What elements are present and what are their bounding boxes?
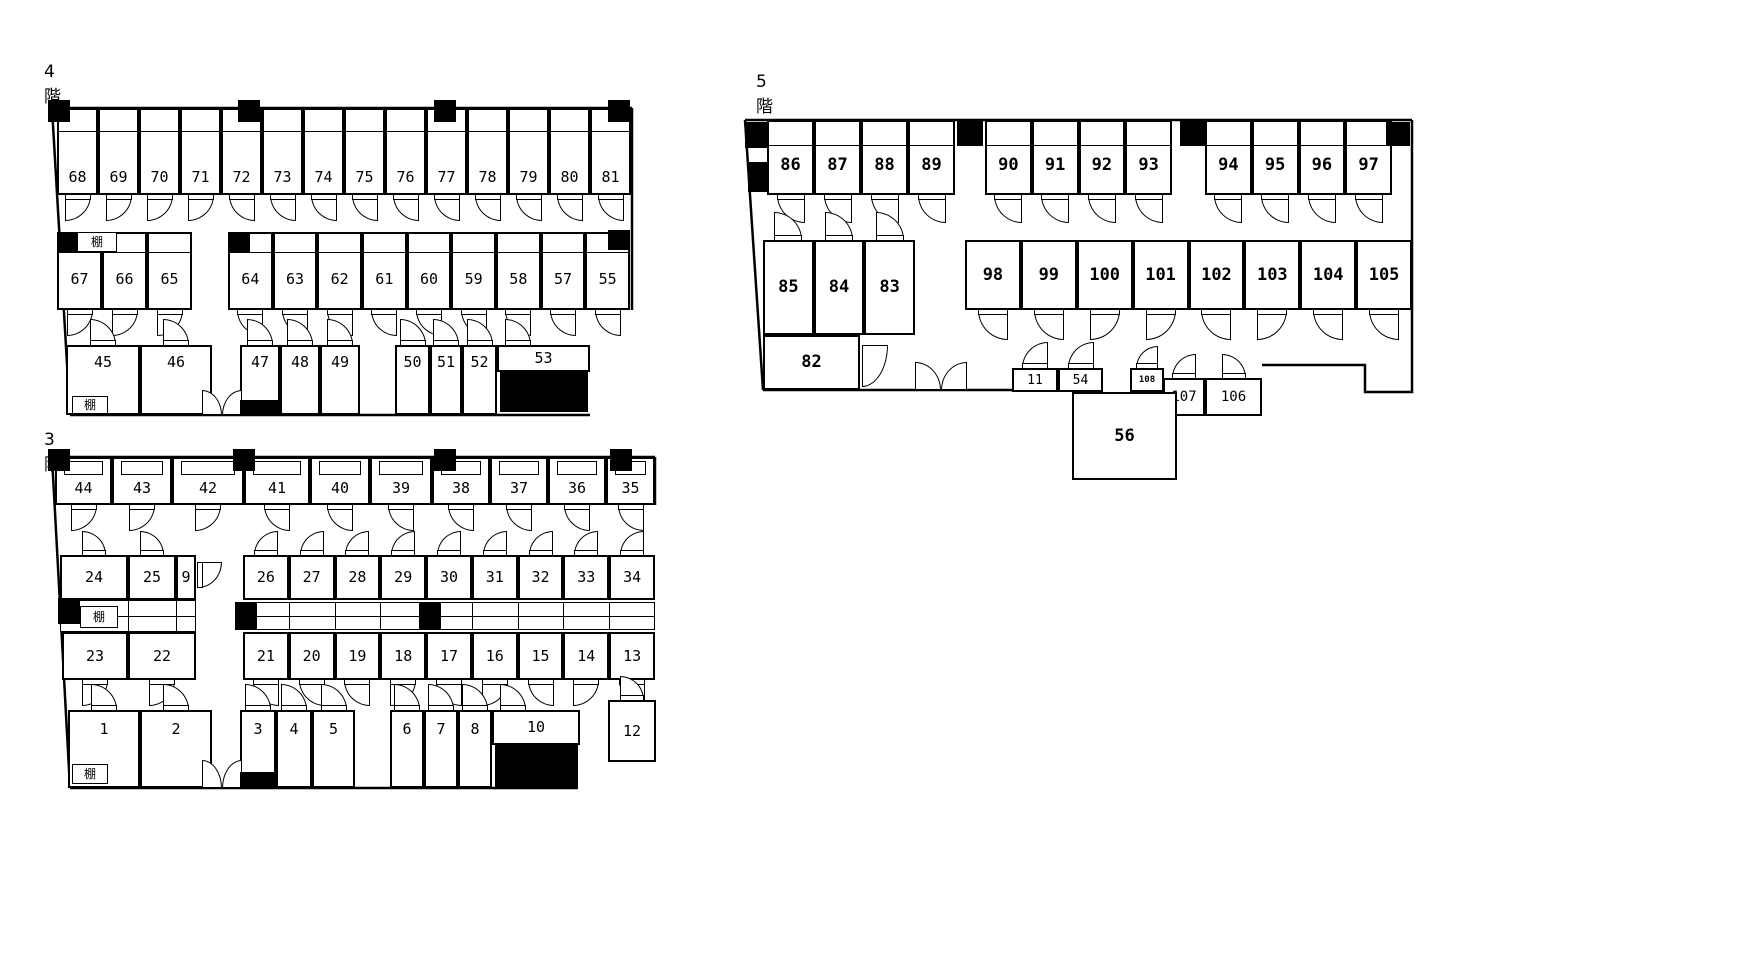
door-leaf — [1214, 194, 1242, 200]
room-label: 58 — [509, 272, 527, 287]
door-leaf — [557, 194, 583, 200]
room-label: 49 — [331, 355, 349, 370]
room-label: 66 — [115, 272, 133, 287]
room-label: 57 — [554, 272, 572, 287]
room-91: 91 — [1032, 120, 1079, 195]
door-leaf — [327, 309, 353, 315]
room-16: 16 — [472, 632, 518, 680]
floor-label-5f: 5階 — [756, 72, 774, 117]
closet-box — [379, 461, 423, 475]
room-76: 76 — [385, 108, 426, 195]
door-leaf — [82, 550, 106, 556]
closet-box — [181, 461, 235, 475]
pillar — [1180, 120, 1206, 146]
shelf-label: 棚 — [93, 611, 105, 623]
room-label: 50 — [403, 355, 421, 370]
room-87: 87 — [814, 120, 861, 195]
room-label: 1 — [99, 722, 108, 737]
door-leaf — [147, 194, 173, 200]
door-leaf — [573, 679, 599, 685]
room-label: 47 — [251, 355, 269, 370]
door-leaf — [1136, 363, 1158, 369]
room-label: 101 — [1145, 267, 1176, 284]
room-70: 70 — [139, 108, 180, 195]
room-label: 82 — [801, 354, 821, 371]
room-98: 98 — [965, 240, 1021, 310]
shelf-label-box: 棚 — [80, 606, 118, 628]
room-label: 93 — [1138, 157, 1158, 174]
pillar — [957, 120, 983, 146]
door-leaf — [300, 550, 324, 556]
room-43: 43 — [112, 457, 172, 505]
pillar — [434, 100, 456, 122]
door-leaf — [344, 679, 370, 685]
room-12: 12 — [608, 700, 656, 762]
room-label: 22 — [153, 649, 171, 664]
room-4: 4 — [276, 710, 312, 788]
room-86: 86 — [767, 120, 814, 195]
door-leaf — [620, 550, 644, 556]
door-leaf — [327, 504, 353, 510]
room-79: 79 — [508, 108, 549, 195]
room-label: 13 — [623, 649, 641, 664]
room-label: 9 — [181, 570, 190, 585]
closet-band-divider — [518, 602, 519, 630]
room-label: 72 — [232, 170, 250, 185]
room-label: 43 — [133, 481, 151, 496]
room-label: 54 — [1073, 374, 1089, 387]
door-leaf — [1201, 309, 1231, 315]
door-leaf — [500, 705, 526, 711]
room-label: 40 — [331, 481, 349, 496]
room-27: 27 — [289, 555, 335, 600]
room-6: 6 — [390, 710, 424, 788]
door-leaf — [1068, 363, 1094, 369]
room-61: 61 — [362, 232, 407, 310]
door-leaf — [229, 194, 255, 200]
room-49: 49 — [320, 345, 360, 415]
room-label: 87 — [827, 157, 847, 174]
room-59: 59 — [451, 232, 496, 310]
filled-area — [240, 400, 278, 414]
door-leaf — [505, 309, 531, 315]
room-label: 60 — [420, 272, 438, 287]
room-97: 97 — [1345, 120, 1392, 195]
room-label: 69 — [109, 170, 127, 185]
room-label: 106 — [1221, 390, 1246, 404]
room-label: 34 — [623, 570, 641, 585]
room-label: 56 — [1114, 428, 1134, 445]
room-89: 89 — [908, 120, 955, 195]
room-30: 30 — [426, 555, 472, 600]
room-7: 7 — [424, 710, 458, 788]
door-leaf — [106, 194, 132, 200]
door-leaf — [129, 504, 155, 510]
closet-line — [769, 145, 953, 146]
closet-line — [230, 252, 628, 253]
room-label: 28 — [348, 570, 366, 585]
room-54: 54 — [1058, 368, 1103, 392]
room-29: 29 — [380, 555, 426, 600]
pillar — [610, 449, 632, 471]
door-leaf — [433, 340, 459, 346]
room-108: 108 — [1130, 368, 1164, 392]
door-leaf — [528, 679, 554, 685]
door-leaf — [197, 562, 203, 588]
room-17: 17 — [426, 632, 472, 680]
room-label: 104 — [1313, 267, 1344, 284]
room-label: 92 — [1092, 157, 1112, 174]
room-label: 46 — [167, 355, 185, 370]
room-26: 26 — [243, 555, 289, 600]
room-label: 79 — [519, 170, 537, 185]
room-label: 76 — [396, 170, 414, 185]
closet-band-line — [243, 616, 655, 617]
room-9: 9 — [176, 555, 196, 600]
room-label: 16 — [486, 649, 504, 664]
room-label: 73 — [273, 170, 291, 185]
door-leaf — [247, 340, 273, 346]
door-leaf — [620, 695, 644, 701]
room-label: 3 — [253, 722, 262, 737]
door-leaf — [388, 504, 414, 510]
room-48: 48 — [280, 345, 320, 415]
door-leaf — [467, 340, 493, 346]
room-label: 103 — [1257, 267, 1288, 284]
door-leaf — [287, 340, 313, 346]
room-57: 57 — [541, 232, 586, 310]
room-label: 80 — [560, 170, 578, 185]
door-leaf — [595, 309, 621, 315]
shelf-label: 棚 — [91, 236, 103, 248]
door-leaf — [777, 194, 805, 200]
door-leaf — [918, 194, 946, 200]
room-80: 80 — [549, 108, 590, 195]
shelf-label: 棚 — [84, 768, 96, 780]
room-14: 14 — [563, 632, 609, 680]
room-100: 100 — [1077, 240, 1133, 310]
room-8: 8 — [458, 710, 492, 788]
closet-box — [121, 461, 163, 475]
door-leaf — [188, 194, 214, 200]
door-leaf — [71, 504, 97, 510]
door-leaf — [516, 194, 542, 200]
closet-line — [59, 252, 190, 253]
door-leaf — [371, 309, 397, 315]
pillar — [419, 602, 441, 630]
closet-line — [987, 145, 1170, 146]
door-leaf — [157, 309, 183, 315]
shelf-label-box: 棚 — [77, 232, 117, 252]
room-label: 55 — [599, 272, 617, 287]
door-leaf — [1172, 373, 1196, 379]
door-leaf — [529, 550, 553, 556]
door-leaf — [65, 194, 91, 200]
room-label: 10 — [527, 720, 545, 735]
floor-plan-canvas: 4階68697071727374757677787980816766656463… — [0, 0, 1744, 962]
room-20: 20 — [289, 632, 335, 680]
door-leaf — [1041, 194, 1069, 200]
pillar — [228, 232, 250, 252]
room-78: 78 — [467, 108, 508, 195]
room-label: 94 — [1218, 157, 1238, 174]
door-leaf — [1222, 373, 1246, 379]
room-label: 86 — [780, 157, 800, 174]
room-label: 81 — [601, 170, 619, 185]
closet-box — [253, 461, 301, 475]
room-74: 74 — [303, 108, 344, 195]
room-label: 27 — [303, 570, 321, 585]
room-23: 23 — [62, 632, 128, 680]
door-leaf — [618, 504, 644, 510]
room-18: 18 — [380, 632, 426, 680]
door-leaf — [825, 235, 853, 241]
door-leaf — [1257, 309, 1287, 315]
room-94: 94 — [1205, 120, 1252, 195]
filled-area — [495, 745, 578, 788]
room-32: 32 — [518, 555, 564, 600]
room-75: 75 — [344, 108, 385, 195]
room-label: 89 — [921, 157, 941, 174]
closet-box — [557, 461, 597, 475]
room-104: 104 — [1300, 240, 1356, 310]
door-leaf — [994, 194, 1022, 200]
room-88: 88 — [861, 120, 908, 195]
room-83: 83 — [864, 240, 915, 335]
door-leaf — [90, 340, 116, 346]
closet-band-divider — [472, 602, 473, 630]
room-label: 78 — [478, 170, 496, 185]
door-leaf — [428, 705, 454, 711]
room-label: 70 — [150, 170, 168, 185]
wall-segment — [745, 120, 763, 390]
room-53: 53 — [497, 345, 590, 372]
door-leaf — [1308, 194, 1336, 200]
room-label: 108 — [1139, 376, 1155, 385]
door-leaf — [112, 309, 138, 315]
room-label: 32 — [532, 570, 550, 585]
pillar — [233, 449, 255, 471]
room-31: 31 — [472, 555, 518, 600]
room-label: 21 — [257, 649, 275, 664]
pillar — [608, 100, 630, 122]
door-leaf — [774, 235, 802, 241]
door-leaf — [352, 194, 378, 200]
room-label: 12 — [623, 724, 641, 739]
room-40: 40 — [310, 457, 370, 505]
room-label: 63 — [286, 272, 304, 287]
room-label: 77 — [437, 170, 455, 185]
room-15: 15 — [518, 632, 564, 680]
door-leaf — [264, 504, 290, 510]
room-93: 93 — [1125, 120, 1172, 195]
pillar — [745, 122, 769, 148]
room-label: 23 — [86, 649, 104, 664]
shelf-label-box: 棚 — [72, 396, 108, 414]
door-leaf — [1313, 309, 1343, 315]
closet-band-divider — [609, 602, 610, 630]
door-leaf — [824, 194, 852, 200]
room-95: 95 — [1252, 120, 1299, 195]
door-leaf — [327, 340, 353, 346]
door-leaf — [311, 194, 337, 200]
room-82: 82 — [763, 335, 860, 390]
room-62: 62 — [317, 232, 362, 310]
room-52: 52 — [462, 345, 497, 415]
door-leaf — [393, 194, 419, 200]
room-24: 24 — [60, 555, 128, 600]
room-label: 97 — [1358, 157, 1378, 174]
room-label: 52 — [470, 355, 488, 370]
room-label: 84 — [829, 279, 849, 296]
room-label: 67 — [70, 272, 88, 287]
room-label: 75 — [355, 170, 373, 185]
room-label: 51 — [437, 355, 455, 370]
door-leaf — [437, 550, 461, 556]
door-leaf — [876, 235, 904, 241]
door-leaf — [254, 550, 278, 556]
door-leaf — [281, 705, 307, 711]
door-leaf — [1090, 309, 1120, 315]
door-leaf — [483, 550, 507, 556]
door-leaf — [436, 679, 462, 685]
closet-band-divider — [335, 602, 336, 630]
room-label: 29 — [394, 570, 412, 585]
pillar — [57, 232, 77, 252]
door-leaf — [1022, 363, 1048, 369]
door-leaf — [394, 705, 420, 711]
pillar — [48, 100, 70, 122]
closet-box — [319, 461, 361, 475]
door-leaf — [253, 679, 279, 685]
door-leaf — [237, 309, 263, 315]
room-label: 8 — [470, 722, 479, 737]
closet-band-divider — [289, 602, 290, 630]
closet-line — [1207, 145, 1390, 146]
door-leaf — [871, 194, 899, 200]
closet-band-divider — [380, 602, 381, 630]
room-label: 85 — [778, 279, 798, 296]
door-leaf — [505, 340, 531, 346]
room-label: 74 — [314, 170, 332, 185]
door-leaf — [1146, 309, 1176, 315]
room-92: 92 — [1079, 120, 1126, 195]
door-leaf — [400, 340, 426, 346]
room-label: 36 — [568, 481, 586, 496]
room-25: 25 — [128, 555, 176, 600]
door-leaf — [140, 550, 164, 556]
room-label: 18 — [394, 649, 412, 664]
room-58: 58 — [496, 232, 541, 310]
door-leaf — [1034, 309, 1064, 315]
door-leaf — [550, 309, 576, 315]
door-leaf — [434, 194, 460, 200]
room-22: 22 — [128, 632, 196, 680]
door-leaf — [270, 194, 296, 200]
room-36: 36 — [548, 457, 606, 505]
room-label: 33 — [577, 570, 595, 585]
closet-line — [59, 131, 629, 132]
room-label: 99 — [1039, 267, 1059, 284]
closet-band-divider — [176, 600, 177, 632]
room-label: 41 — [268, 481, 286, 496]
door-leaf — [391, 550, 415, 556]
room-21: 21 — [243, 632, 289, 680]
closet-band-divider — [128, 600, 129, 632]
room-label: 39 — [392, 481, 410, 496]
room-label: 53 — [534, 351, 552, 366]
room-101: 101 — [1133, 240, 1189, 310]
room-label: 42 — [199, 481, 217, 496]
room-51: 51 — [430, 345, 462, 415]
door-leaf — [1135, 194, 1163, 200]
pillar — [608, 230, 630, 250]
room-label: 15 — [532, 649, 550, 664]
room-5: 5 — [312, 710, 355, 788]
room-63: 63 — [273, 232, 318, 310]
door-leaf — [195, 504, 221, 510]
door-leaf — [574, 550, 598, 556]
shelf-label: 棚 — [84, 399, 96, 411]
room-50: 50 — [395, 345, 430, 415]
room-label: 64 — [241, 272, 259, 287]
room-label: 91 — [1045, 157, 1065, 174]
room-label: 68 — [68, 170, 86, 185]
filled-area — [500, 372, 588, 412]
room-label: 62 — [331, 272, 349, 287]
closet-band-divider — [563, 602, 564, 630]
room-39: 39 — [370, 457, 432, 505]
room-99: 99 — [1021, 240, 1077, 310]
room-10: 10 — [492, 710, 580, 745]
closet-box — [499, 461, 539, 475]
door-leaf — [163, 340, 189, 346]
door-leaf — [475, 194, 501, 200]
room-label: 4 — [289, 722, 298, 737]
room-label: 38 — [452, 481, 470, 496]
shelf-label-box: 棚 — [72, 764, 108, 784]
room-28: 28 — [335, 555, 381, 600]
room-label: 20 — [303, 649, 321, 664]
room-label: 59 — [465, 272, 483, 287]
door-leaf — [282, 309, 308, 315]
room-19: 19 — [335, 632, 381, 680]
room-label: 26 — [257, 570, 275, 585]
room-label: 14 — [577, 649, 595, 664]
room-label: 6 — [402, 722, 411, 737]
room-label: 17 — [440, 649, 458, 664]
room-11: 11 — [1012, 368, 1058, 392]
pillar — [48, 449, 70, 471]
door-leaf — [163, 705, 189, 711]
pillar — [235, 602, 257, 630]
room-label: 102 — [1201, 267, 1232, 284]
room-label: 105 — [1369, 267, 1400, 284]
room-label: 96 — [1312, 157, 1332, 174]
door-leaf — [345, 550, 369, 556]
room-96: 96 — [1299, 120, 1346, 195]
room-65: 65 — [147, 232, 192, 310]
room-37: 37 — [490, 457, 548, 505]
room-85: 85 — [763, 240, 814, 335]
room-label: 24 — [85, 570, 103, 585]
room-label: 61 — [375, 272, 393, 287]
room-label: 25 — [143, 570, 161, 585]
room-label: 37 — [510, 481, 528, 496]
room-73: 73 — [262, 108, 303, 195]
room-60: 60 — [407, 232, 452, 310]
room-label: 100 — [1089, 267, 1120, 284]
